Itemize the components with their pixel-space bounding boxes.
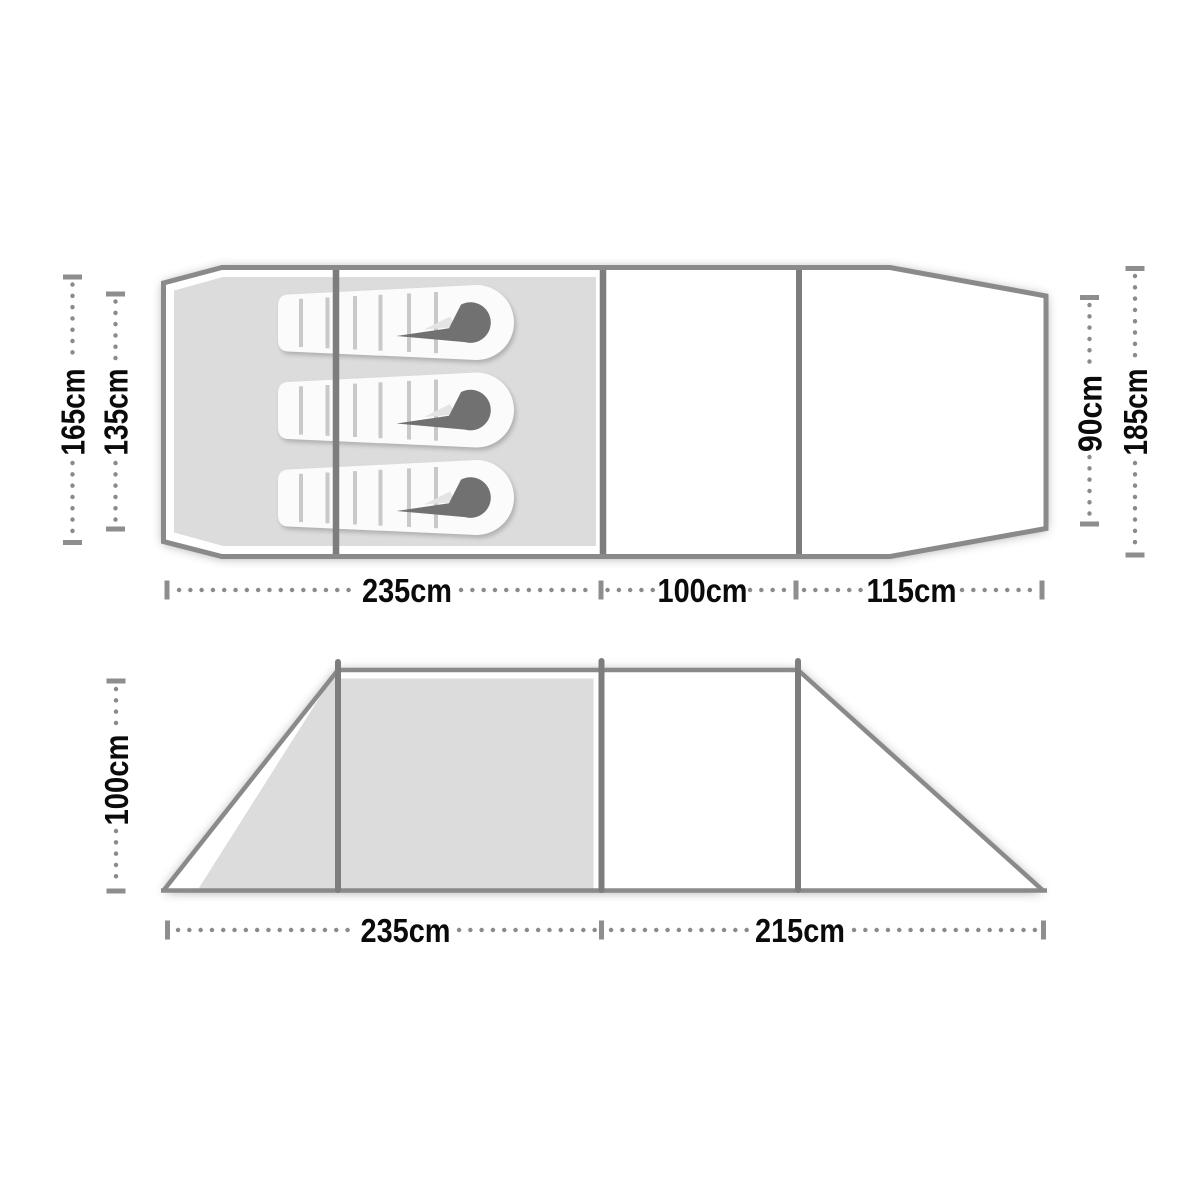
- svg-text:115cm: 115cm: [867, 572, 957, 609]
- svg-text:235cm: 235cm: [361, 912, 451, 949]
- svg-text:100cm: 100cm: [658, 572, 748, 609]
- svg-text:235cm: 235cm: [362, 572, 452, 609]
- svg-text:100cm: 100cm: [98, 735, 135, 826]
- svg-text:90cm: 90cm: [1071, 375, 1108, 452]
- svg-text:165cm: 165cm: [54, 369, 91, 456]
- svg-text:185cm: 185cm: [1117, 369, 1154, 456]
- svg-text:135cm: 135cm: [97, 369, 134, 456]
- svg-text:215cm: 215cm: [755, 912, 845, 949]
